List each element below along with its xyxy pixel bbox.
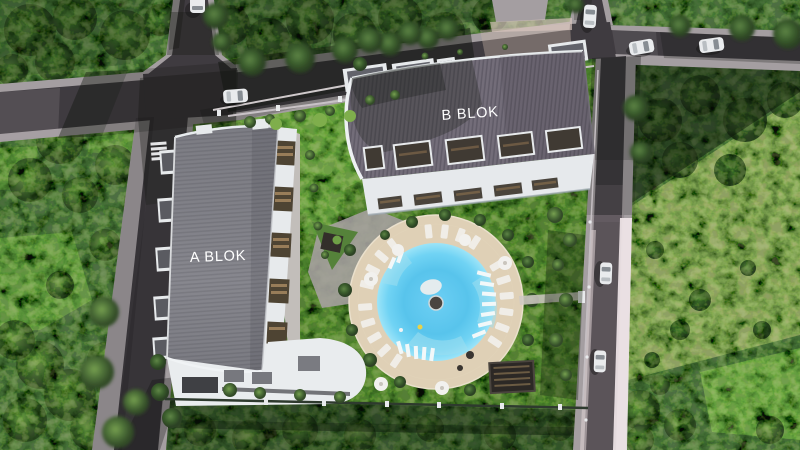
svg-text:A BLOK: A BLOK bbox=[190, 248, 247, 266]
